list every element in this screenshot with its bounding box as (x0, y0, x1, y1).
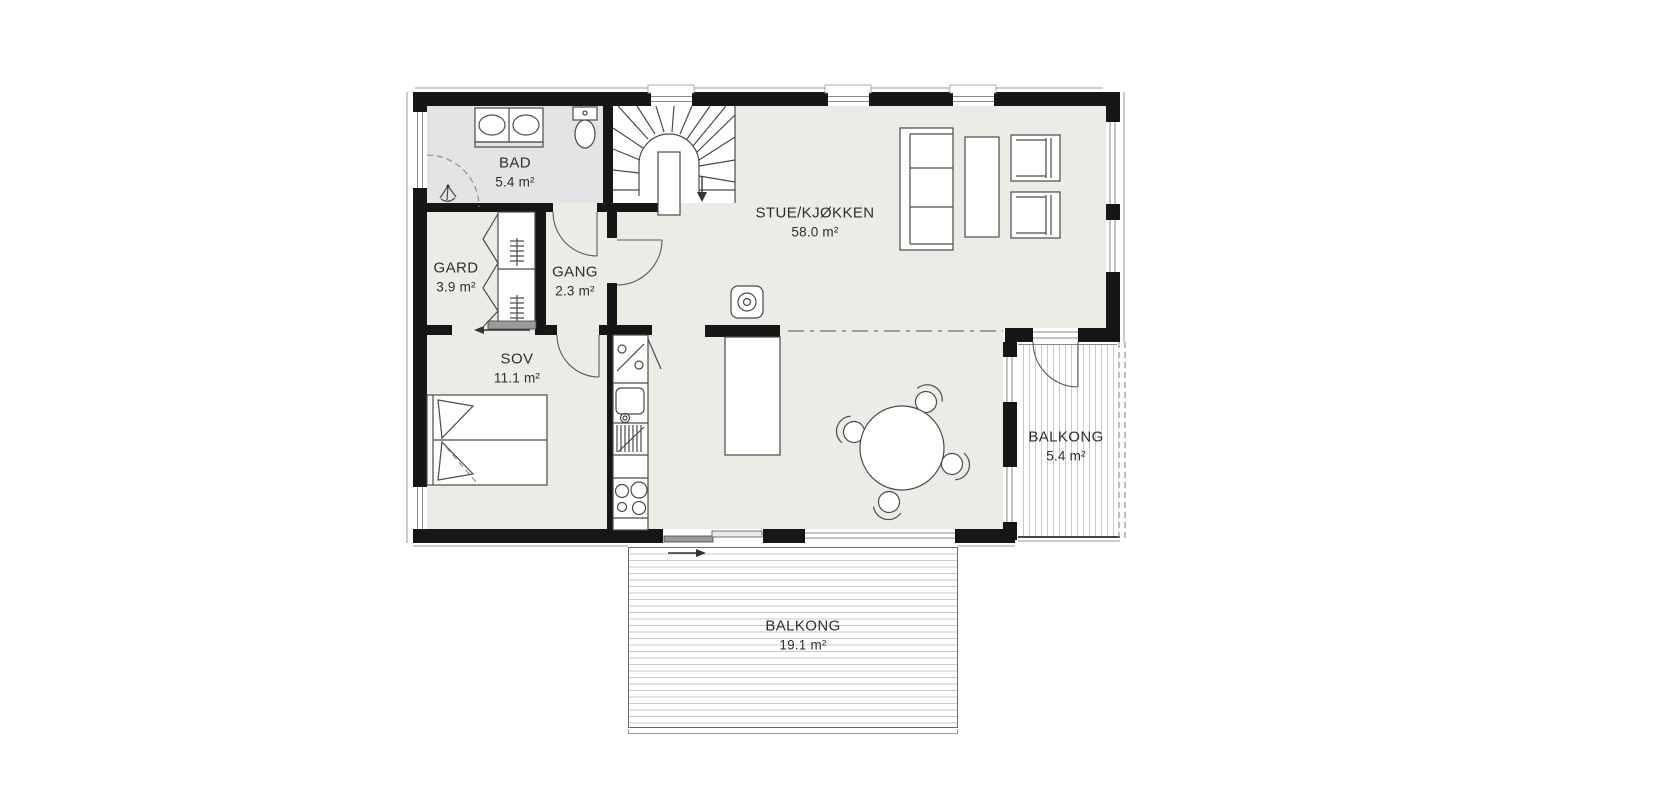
room-label-sov: SOV 11.1 m² (494, 349, 540, 386)
window-top-stue-1 (828, 92, 869, 106)
room-name: GARD (434, 258, 479, 278)
double-sink-vanity (475, 108, 543, 147)
room-name: BALKONG (1028, 427, 1103, 447)
window-bottom-stue (805, 529, 955, 543)
window-left-sov (413, 487, 427, 529)
sofa (900, 128, 953, 250)
window-balcony-wall-2 (1003, 467, 1017, 522)
window-right-2 (1106, 220, 1120, 272)
room-label-gang: GANG 2.3 m² (552, 262, 598, 299)
kitchen-island (725, 337, 780, 455)
balcony-door-opening (1033, 328, 1078, 342)
dining-table (860, 406, 944, 490)
room-label-bad: BAD 5.4 m² (495, 153, 534, 190)
balcony-door (1033, 342, 1078, 387)
window-top-stair (651, 92, 692, 106)
room-label-balkong-east: BALKONG 5.4 m² (1028, 427, 1103, 464)
coffee-table (965, 137, 999, 237)
window-left-bath (413, 112, 427, 188)
window-right-1 (1106, 122, 1120, 204)
window-balcony-wall-1 (1003, 357, 1017, 402)
window-top-stue-2 (953, 92, 994, 106)
room-area: 58.0 m² (756, 223, 875, 241)
toilet (573, 107, 597, 148)
room-area: 3.9 m² (434, 278, 479, 296)
room-area: 19.1 m² (765, 636, 840, 654)
room-label-stue-kjokken: STUE/KJØKKEN 58.0 m² (756, 203, 875, 240)
fireplace (731, 286, 763, 318)
room-name: SOV (494, 349, 540, 369)
floorplan-drawing (0, 0, 1670, 800)
room-label-balkong-south: BALKONG 19.1 m² (765, 616, 840, 653)
room-name: GANG (552, 262, 598, 282)
room-name: BAD (495, 153, 534, 173)
room-area: 2.3 m² (552, 282, 598, 300)
room-area: 5.4 m² (495, 173, 534, 191)
room-area: 11.1 m² (494, 369, 540, 387)
room-label-gard: GARD 3.9 m² (434, 258, 479, 295)
armchair (1011, 135, 1060, 181)
double-bed (427, 395, 547, 485)
floorplan-canvas: BAD 5.4 m² GARD 3.9 m² GANG 2.3 m² SOV 1… (0, 0, 1670, 800)
room-name: BALKONG (765, 616, 840, 636)
room-name: STUE/KJØKKEN (756, 203, 875, 223)
armchair (1011, 192, 1060, 238)
room-area: 5.4 m² (1028, 447, 1103, 465)
